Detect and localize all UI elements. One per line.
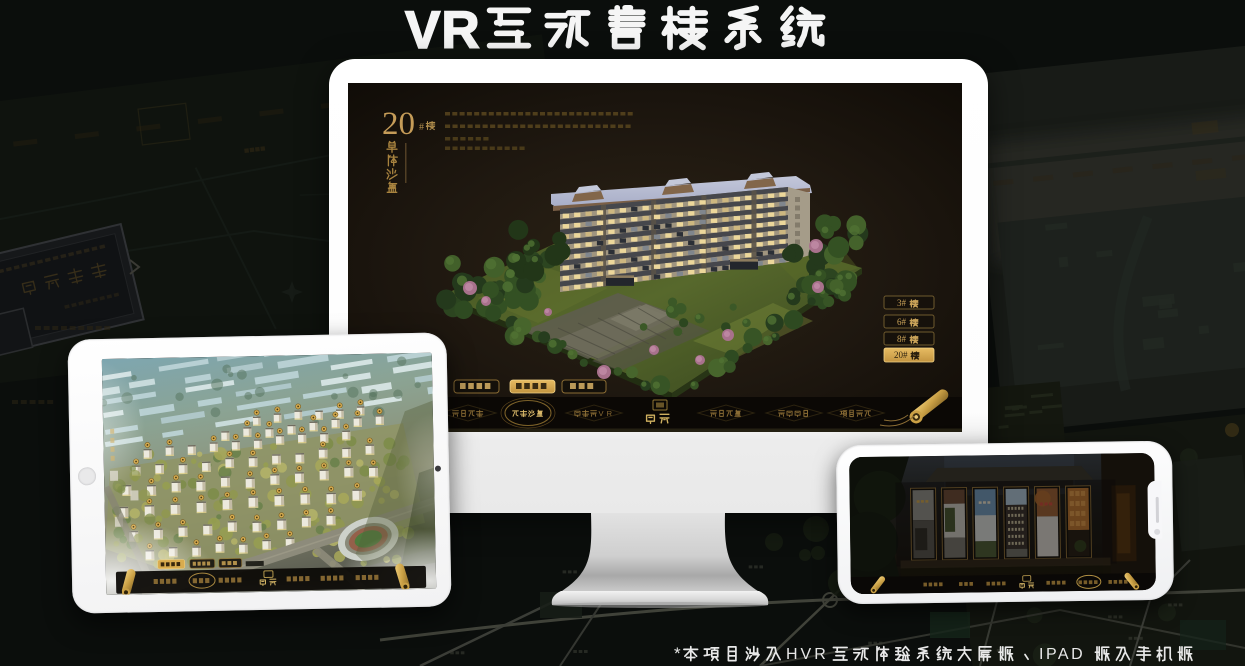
svg-text:*: * xyxy=(674,644,681,663)
svg-text:HVR: HVR xyxy=(786,646,829,663)
svg-text:IPAD: IPAD xyxy=(1039,646,1085,663)
